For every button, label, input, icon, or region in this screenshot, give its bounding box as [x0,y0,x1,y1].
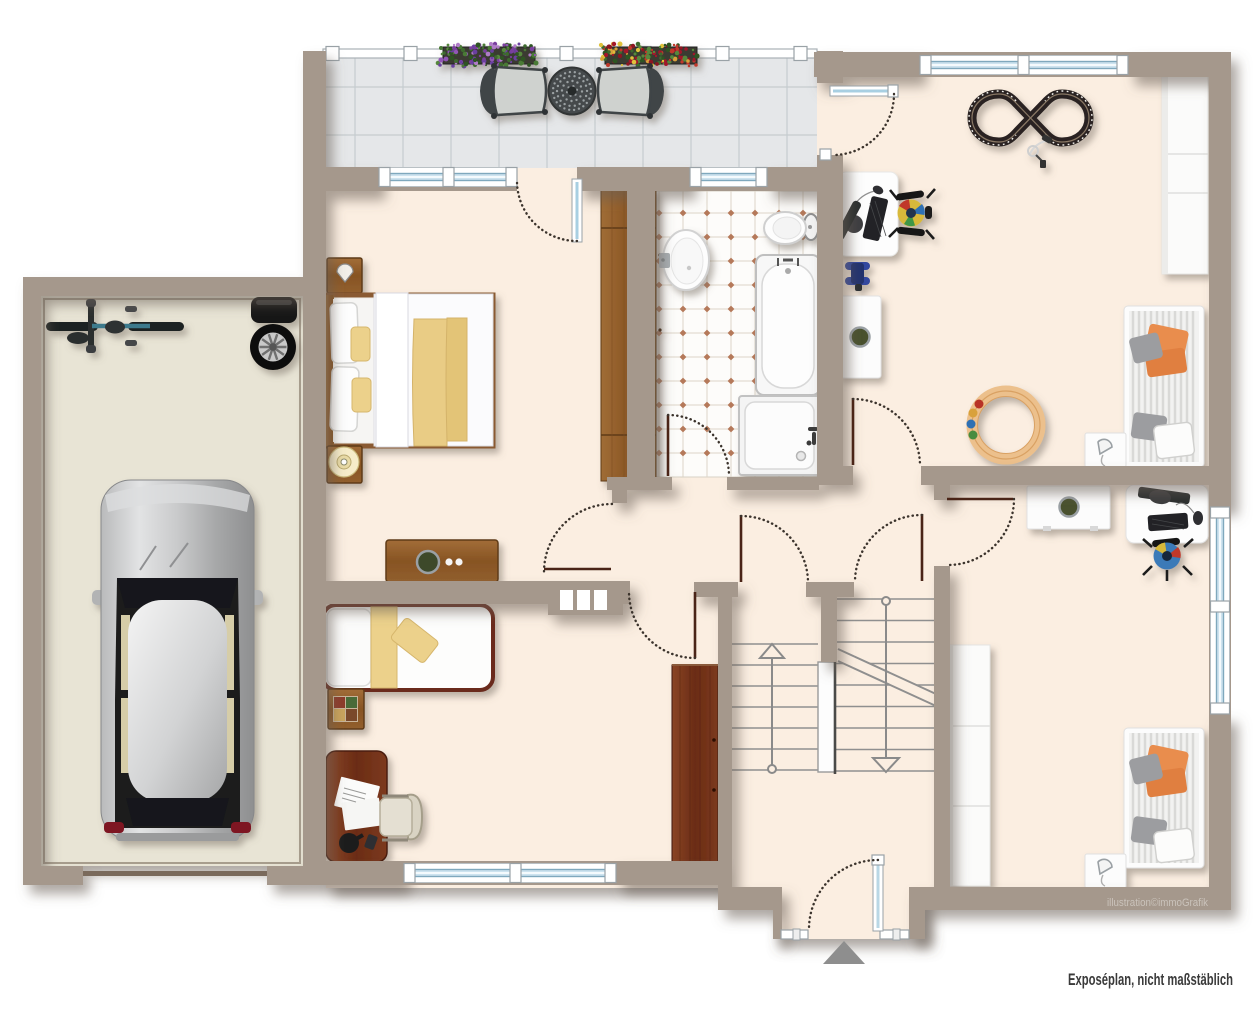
svg-text:Exposéplan, nicht maßstäblich: Exposéplan, nicht maßstäblich [1068,971,1233,989]
svg-text:illustration©immoGrafik: illustration©immoGrafik [1107,897,1208,909]
